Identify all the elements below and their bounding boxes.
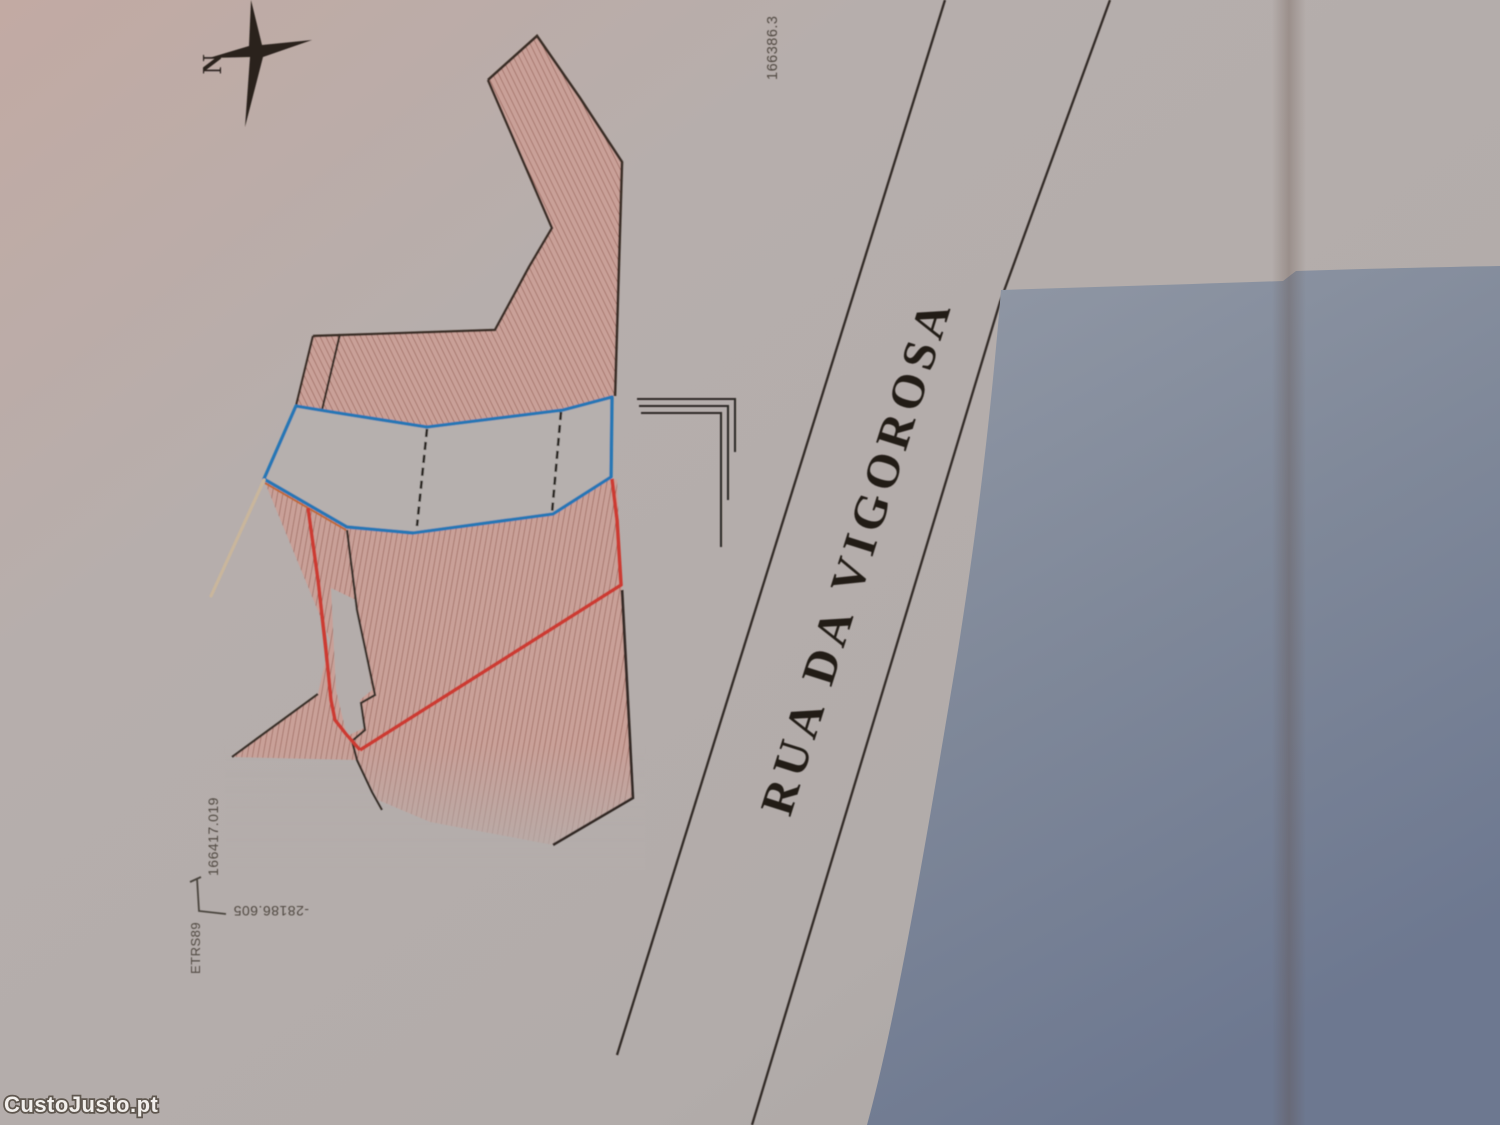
paper-crease-shadow: [1272, 0, 1306, 1125]
photo-of-site-plan: { "map": { "street_label": "RUA DA VIGOR…: [0, 0, 1500, 1125]
coordinate-label-bottom: -28186.605: [233, 903, 309, 919]
site-plan-photo: RUA DA VIGOROSA N 166417.019 -28186.605 …: [0, 0, 1500, 1125]
datum-label: ETRS89: [188, 922, 203, 974]
compass-north-label: N: [197, 54, 227, 74]
coordinate-label-top-right: 166386.3: [765, 16, 781, 80]
hatch-fade: [225, 745, 645, 870]
coordinate-label-left: 166417.019: [205, 797, 221, 876]
watermark: CustoJusto.pt: [4, 1092, 159, 1117]
site-plan-canvas: RUA DA VIGOROSA N 166417.019 -28186.605 …: [0, 0, 1500, 1125]
